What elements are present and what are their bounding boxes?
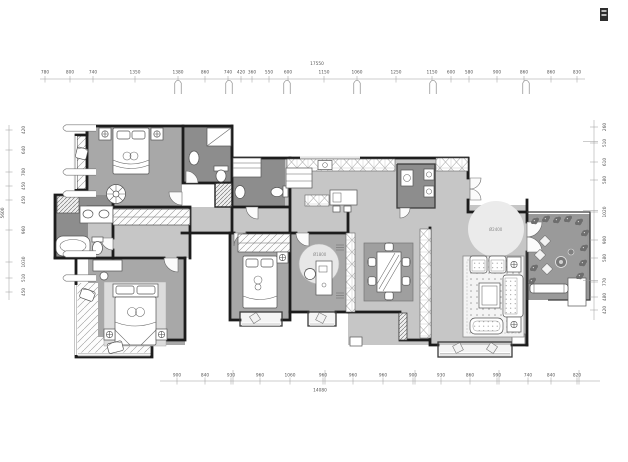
dim-label: 820 (573, 373, 581, 379)
dim-label: 1380 (173, 70, 184, 76)
dim-label: 450 (21, 182, 27, 190)
kitchen-island (330, 190, 357, 205)
dim-label: 450 (21, 288, 27, 296)
dim-label: 600 (447, 70, 455, 76)
dim-label: 900 (173, 373, 181, 379)
dim-label: 5600 (0, 207, 6, 218)
dim-label: 480 (602, 293, 608, 301)
dim-label: 580 (602, 176, 608, 184)
dim-label: 800 (66, 70, 74, 76)
dining-chair (368, 277, 376, 285)
bath2-closet (233, 158, 261, 177)
desk-chair (305, 268, 316, 279)
dim-label: 420 (21, 126, 27, 134)
stool (344, 206, 351, 212)
window-bedroom1-bay (73, 136, 77, 189)
shaft (215, 183, 232, 207)
armchair (470, 256, 487, 273)
lamp-side-table (507, 257, 521, 272)
dim-label: 990 (493, 373, 501, 379)
dim-label: 930 (437, 373, 445, 379)
dim-label: 700 (21, 168, 27, 176)
armchair (75, 147, 88, 160)
dim-label: 860 (466, 373, 474, 379)
door-entry-leaf2 (470, 189, 481, 200)
dim-label: 14080 (313, 388, 327, 394)
dim-label: 610 (602, 158, 608, 166)
appliance (424, 169, 434, 180)
dim-label: 17550 (310, 61, 324, 67)
dim-label: 1250 (391, 70, 402, 76)
bed1 (113, 128, 149, 174)
terrace-table (556, 257, 567, 268)
floor-plan-drawing: Ø1800 (0, 0, 628, 462)
dining-chair (385, 292, 393, 300)
coffee-table (479, 283, 500, 308)
dim-label: 900 (409, 373, 417, 379)
round-table (107, 185, 126, 204)
dimension-line-top: 7808007401350138086074042036055060011501… (40, 61, 585, 94)
dimension-line-bottom: 9008409309601060960960960900930860990740… (160, 370, 600, 394)
sink (99, 210, 109, 218)
stool (333, 206, 340, 212)
toilet (216, 170, 226, 182)
hall-cabinet (286, 168, 312, 188)
dim-label: 360 (248, 70, 256, 76)
dim-label: 1350 (130, 70, 141, 76)
dim-label: 450 (21, 196, 27, 204)
dim-label: 640 (21, 146, 27, 154)
door-entry-leaf1 (470, 178, 481, 189)
appliance (401, 170, 413, 186)
dim-label: 840 (547, 373, 555, 379)
shower (57, 196, 79, 213)
kitchen-sink (318, 161, 332, 170)
dim-label: 580 (465, 70, 473, 76)
bench (470, 318, 503, 334)
study-rug-label: Ø1800 (313, 252, 327, 257)
appliance (424, 186, 434, 197)
wall-column (350, 337, 362, 346)
dim-label: 260 (602, 123, 608, 131)
dim-label: 780 (41, 70, 49, 76)
dim-label: 900 (493, 70, 501, 76)
dim-label: 550 (265, 70, 273, 76)
dim-label: 960 (319, 373, 327, 379)
dim-label: 770 (602, 278, 608, 286)
dining-chair (402, 258, 410, 266)
dining-cabinet (346, 233, 355, 312)
dim-label: 1060 (352, 70, 363, 76)
stool (100, 272, 108, 280)
dim-label: 960 (256, 373, 264, 379)
armchair (489, 256, 506, 273)
dim-label: 1150 (427, 70, 438, 76)
dim-label: 960 (379, 373, 387, 379)
dim-label: 510 (21, 274, 27, 282)
sofa (503, 275, 523, 317)
sink (235, 186, 245, 199)
dim-label: 960 (349, 373, 357, 379)
dining-chair (385, 243, 393, 251)
dim-label: 740 (89, 70, 97, 76)
dim-label: 420 (602, 306, 608, 314)
dim-label: 1060 (285, 373, 296, 379)
dim-label: 930 (227, 373, 235, 379)
toilet (271, 187, 283, 196)
bed2 (243, 256, 277, 308)
dim-label: 860 (520, 70, 528, 76)
dim-label: 860 (201, 70, 209, 76)
dim-label: 1020 (602, 206, 608, 217)
dim-label: 840 (201, 373, 209, 379)
dim-label: 960 (21, 226, 27, 234)
dim-label: 420 (237, 70, 245, 76)
terrace-stool (568, 249, 574, 255)
dining-chair (368, 258, 376, 266)
lobby-cabinet (436, 158, 468, 171)
dim-label: 900 (602, 236, 608, 244)
vanity-desk (93, 260, 122, 271)
dim-label: 1030 (21, 256, 27, 267)
dim-label: 830 (573, 70, 581, 76)
entry-rug-label: Ø2400 (489, 227, 503, 232)
dim-label: 1150 (319, 70, 330, 76)
dim-label: 510 (602, 139, 608, 147)
entry: Ø2400 (468, 201, 524, 257)
terrace-bench (530, 284, 568, 293)
window-living-bay (440, 352, 510, 356)
sink (189, 151, 199, 165)
dim-label: 580 (602, 254, 608, 262)
master-bed (115, 297, 156, 345)
dim-label: 740 (524, 373, 532, 379)
dim-label: 740 (224, 70, 232, 76)
window-bedroom2-bay (242, 323, 280, 327)
tv-cabinet (420, 229, 431, 338)
lamp-side-table (507, 317, 521, 332)
dim-label: 860 (547, 70, 555, 76)
drawing-stamp (600, 8, 608, 21)
kitchen-low-counter (305, 195, 329, 206)
dining-chair (402, 277, 410, 285)
sink (83, 210, 93, 218)
dim-label: 600 (284, 70, 292, 76)
step-hatch (399, 313, 407, 340)
terrace-box (568, 278, 586, 306)
